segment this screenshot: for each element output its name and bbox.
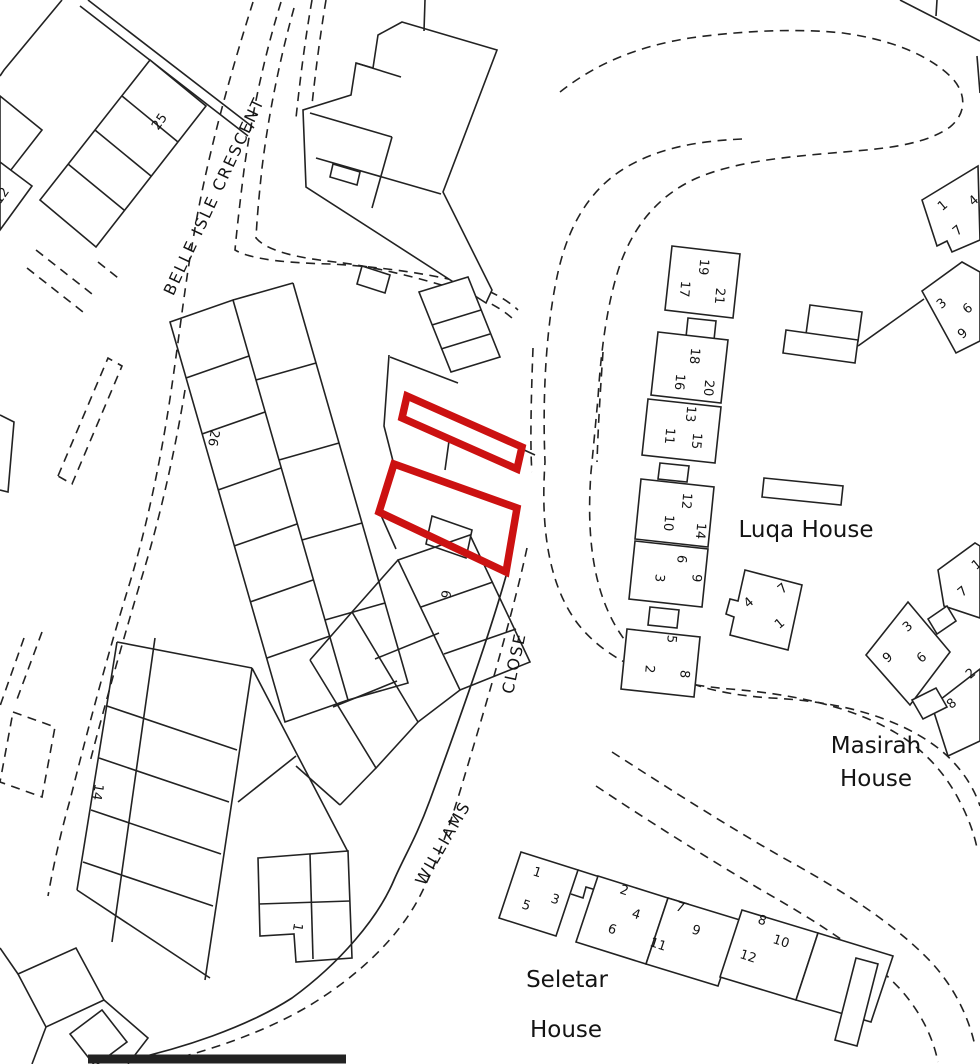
house-name-label: Masirah	[831, 733, 921, 759]
plot-number-label: 20	[700, 379, 716, 397]
plot-number-label: 12	[678, 492, 694, 510]
plot-number-label: 11	[661, 427, 677, 445]
plot-number-label: 2	[641, 664, 657, 674]
plot-number-label: 14	[692, 522, 708, 540]
map-canvas: 2512261416171921181620131115121014639528…	[0, 0, 980, 1064]
plot-number-label: 8	[676, 669, 692, 679]
house-name-label: House	[840, 766, 912, 792]
plot-number-label: 16	[671, 373, 687, 391]
plot-number-label: 19	[695, 258, 711, 276]
house-name-label: Luqa House	[738, 517, 873, 543]
plot-number-label: 21	[711, 287, 727, 305]
plot-number-label: 3	[651, 573, 667, 583]
plot-number-label: 17	[676, 280, 692, 298]
plot-number-label: 26	[204, 429, 222, 448]
street-name-label: CLOSE	[498, 631, 530, 696]
plot-number-label: 13	[682, 405, 698, 423]
plot-number-label: 5	[663, 634, 679, 644]
highlighted-plot-outline-1	[402, 396, 522, 469]
plot-number-label: 6	[437, 589, 453, 600]
plot-number-label: 15	[688, 432, 704, 450]
highlighted-plot-outline-2	[379, 464, 517, 572]
house-name-label: House	[530, 1017, 602, 1043]
plot-number-label: 14	[88, 783, 106, 802]
plot-number-label: 9	[688, 573, 704, 583]
plot-number-label: 6	[673, 554, 689, 564]
site-plan-map: 2512261416171921181620131115121014639528…	[0, 0, 980, 1064]
highlight-layer	[379, 396, 522, 572]
street-name-label: WILLIAMS	[411, 798, 474, 889]
plot-number-label: 10	[660, 514, 676, 532]
plot-number-label: 18	[686, 347, 702, 365]
house-name-label: Seletar	[526, 967, 608, 993]
